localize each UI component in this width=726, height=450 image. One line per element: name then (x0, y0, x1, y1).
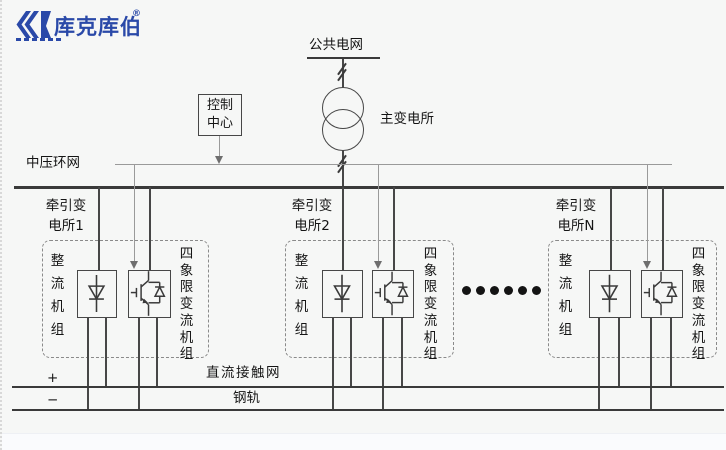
substation-n-rectifier-catenary-line (618, 318, 620, 387)
substation-1-rectifier-catenary-line (105, 318, 107, 387)
substation-2-control-arrow-icon (374, 261, 382, 269)
main-substation-label: 主变电所 (380, 111, 434, 127)
catenary-polarity-label: + (47, 370, 58, 386)
substation-n-control-line (647, 165, 648, 261)
substation-2-rectifier-rail-line (332, 318, 334, 410)
substation-1-converter-rail-line (138, 318, 140, 410)
catenary-label: 直流接触网 (206, 365, 281, 381)
substation-2-title: 牵引变 电所2 (282, 196, 342, 237)
registered-trademark-icon: ® (132, 9, 141, 19)
rail-label: 钢轨 (233, 390, 260, 406)
substation-2-converter-box (372, 270, 414, 318)
substation-2-control-line (378, 165, 379, 261)
substation-n-four-quadrant-label: 四象限变流机组 (690, 246, 707, 363)
substation-2-converter-catenary-line (401, 318, 403, 387)
mv-ring-label: 中压环网 (26, 155, 80, 171)
control-ring-line (115, 164, 672, 165)
substation-1-converter-feeder (149, 187, 151, 270)
dc-catenary-line (12, 386, 724, 388)
brand-logo-icon (15, 11, 51, 38)
substation-1-control-line (134, 165, 135, 261)
substation-n-rectifier-feeder (610, 187, 612, 270)
substation-n-converter-box (641, 270, 683, 318)
substation-1-control-arrow-icon (130, 261, 138, 269)
substation-2-rectifier-label: 整流机组 (293, 250, 310, 342)
rail-line (12, 409, 724, 411)
brand-logo-text: 库克库伯 (54, 11, 142, 41)
substation-1-rectifier-label: 整流机组 (49, 250, 66, 342)
substation-2-rectifier-feeder (342, 187, 344, 270)
substation-2-four-quadrant-label: 四象限变流机组 (422, 246, 439, 363)
substation-n-converter-feeder (662, 187, 664, 270)
control-center-box: 控制 中心 (198, 94, 242, 136)
ellipsis-dots (462, 286, 541, 295)
substation-n-rectifier-box (589, 270, 631, 318)
substation-1-converter-catenary-line (156, 318, 158, 387)
logo-tagline (16, 38, 62, 41)
public-grid-label: 公共电网 (309, 37, 363, 53)
substation-n-converter-catenary-line (670, 318, 672, 387)
substation-1-rectifier-box (77, 270, 117, 318)
substation-n-rectifier-label: 整流机组 (557, 250, 574, 342)
substation-1-rectifier-feeder (98, 187, 100, 270)
control-center-label: 控制 中心 (207, 97, 233, 133)
substation-1-four-quadrant-label: 四象限变流机组 (178, 246, 195, 363)
substation-n-title: 牵引变 电所N (546, 196, 606, 237)
substation-n-converter-rail-line (650, 318, 652, 410)
bottom-margin-strip (2, 433, 726, 450)
diagram-canvas: 库克库伯 ® 公共电网 主变电所 控制 中心 中压环网 牵引变 电所1 整流机组… (0, 0, 726, 450)
transformer-symbol-secondary-coil (322, 109, 364, 151)
substation-n-control-arrow-icon (643, 261, 651, 269)
mv-ring-busbar (14, 186, 724, 189)
control-signal-arrow-icon (215, 156, 223, 164)
substation-1-rectifier-rail-line (87, 318, 89, 410)
substation-n-rectifier-rail-line (598, 318, 600, 410)
control-signal-line (219, 136, 220, 157)
substation-2-converter-feeder (393, 187, 395, 270)
substation-2-converter-rail-line (382, 318, 384, 410)
substation-1-title: 牵引变 电所1 (36, 196, 96, 237)
substation-1-converter-box (128, 270, 171, 318)
substation-2-rectifier-catenary-line (350, 318, 352, 387)
substation-2-rectifier-box (322, 270, 363, 318)
rail-polarity-label: − (47, 392, 58, 408)
